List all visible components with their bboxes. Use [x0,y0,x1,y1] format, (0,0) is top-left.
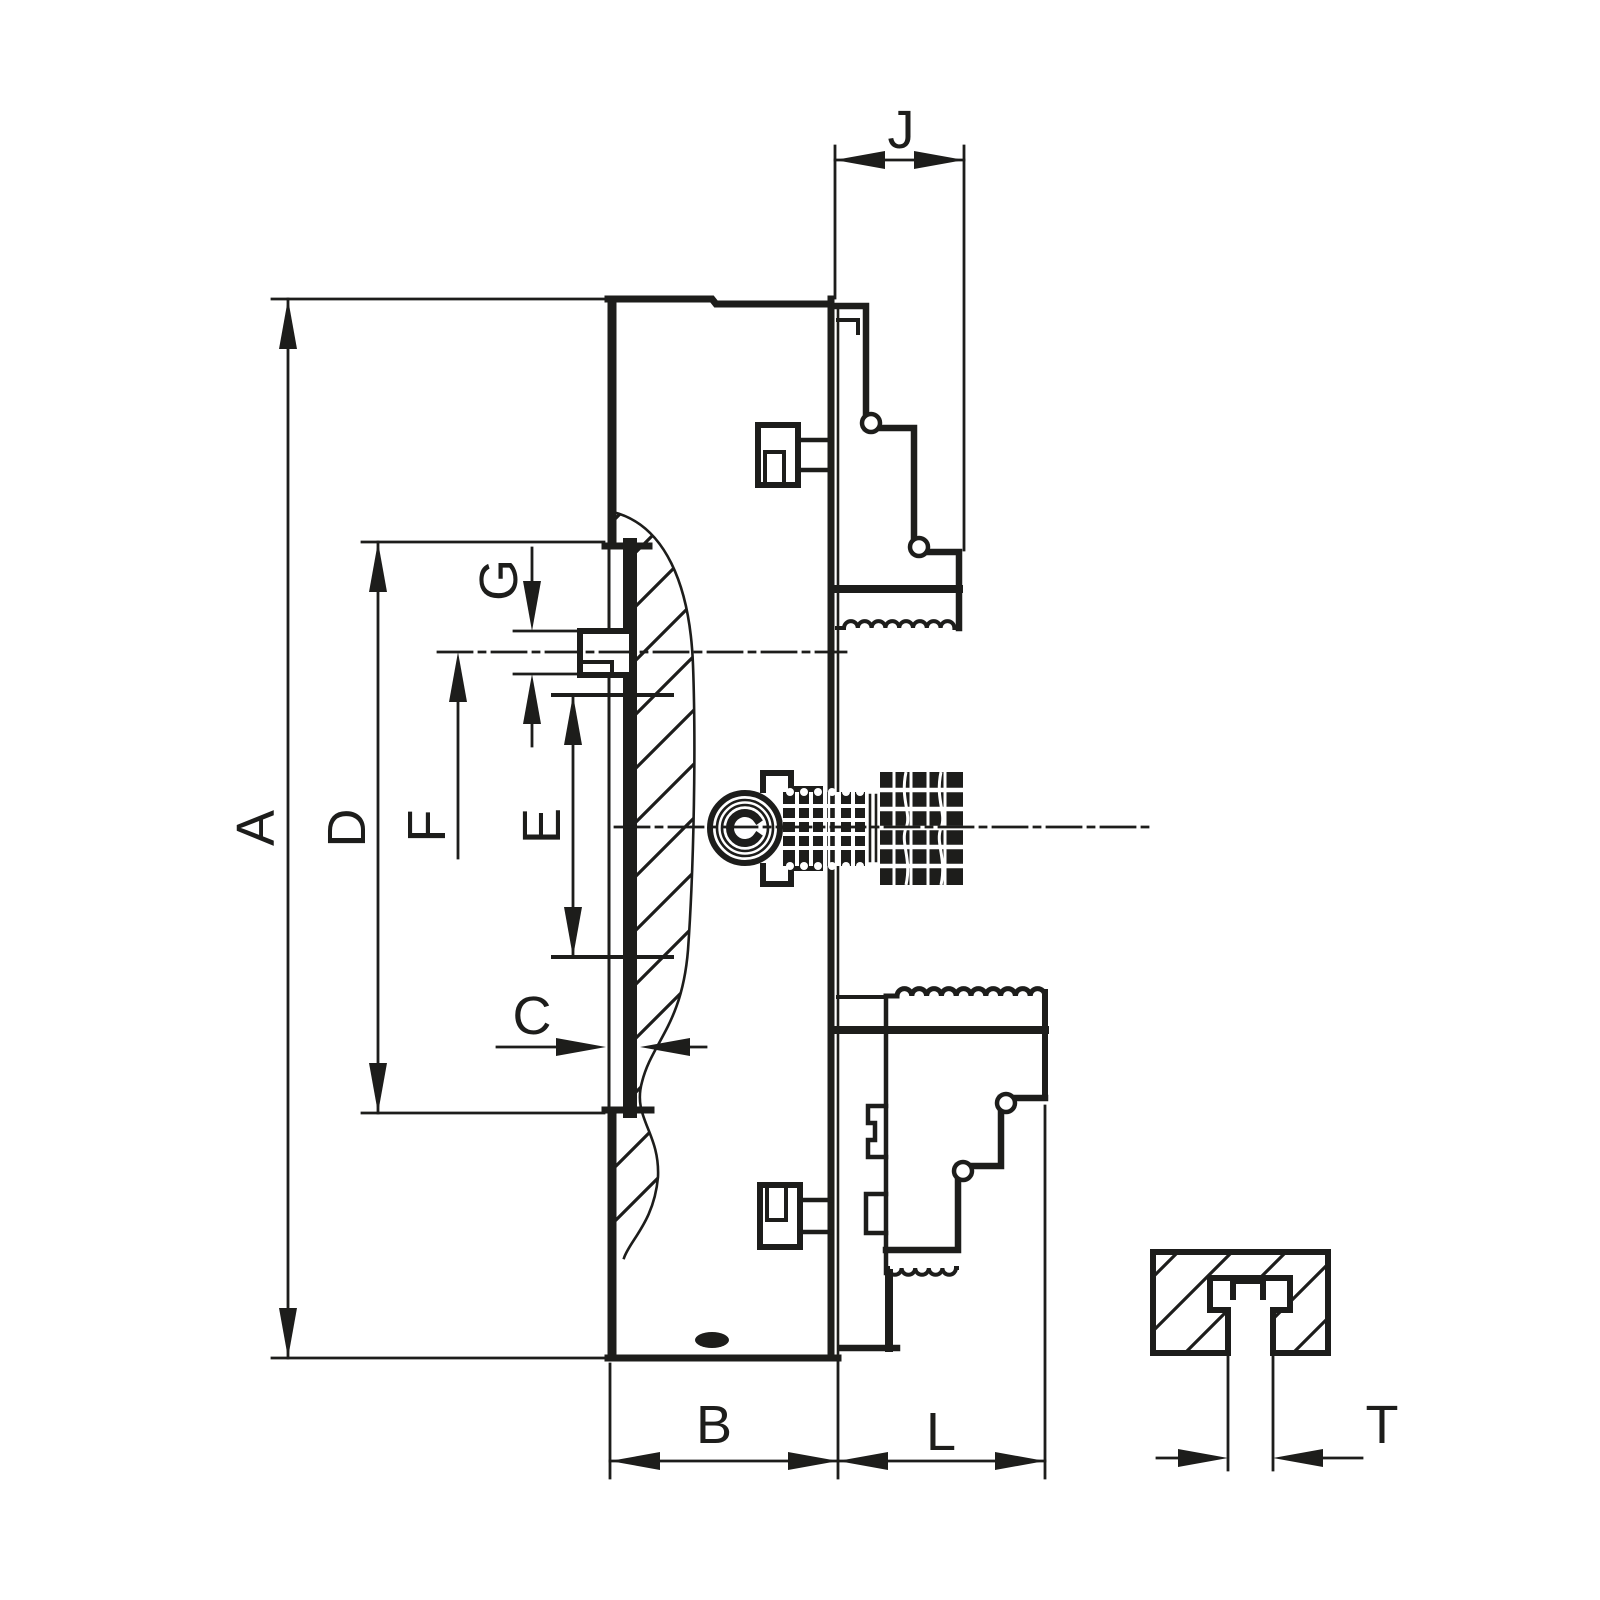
top-jaw-relief-groove-1 [862,414,880,432]
dimension-label-G: G [469,559,529,601]
dimension-label-D: D [317,809,377,848]
dimension-label-L: L [926,1402,956,1462]
bottom-jaw-relief-groove-2 [954,1162,972,1180]
dimension-label-C: C [513,986,552,1046]
dimension-label-E: E [512,808,572,844]
bottom-jaw-relief-groove-1 [997,1094,1015,1112]
dimension-label-T: T [1366,1395,1399,1455]
chuck-dimensional-drawing: A D F E G C J [0,0,1600,1600]
top-jaw-relief-groove-2 [910,538,928,556]
dimension-label-B: B [696,1395,732,1455]
lubrication-hole [695,1332,729,1348]
screw-thread-knurl-coarse [880,772,963,885]
dimension-label-J: J [888,100,915,160]
screw-thread-knurl-fine [783,788,865,870]
technical-drawing-page: A D F E G C J [0,0,1600,1600]
dimension-label-F: F [397,810,457,843]
dimension-label-A: A [226,810,286,846]
